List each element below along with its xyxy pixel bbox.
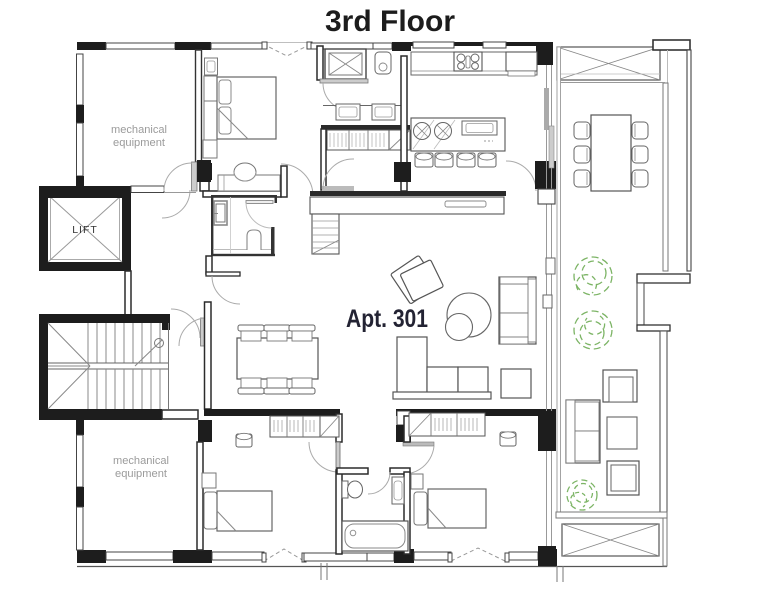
svg-text:mechanical: mechanical	[111, 124, 167, 136]
svg-text:3rd Floor: 3rd Floor	[325, 5, 455, 38]
svg-text:LIFT: LIFT	[72, 224, 98, 236]
svg-text:equipment: equipment	[113, 137, 165, 149]
svg-text:Apt. 301: Apt. 301	[346, 305, 428, 333]
svg-text:mechanical: mechanical	[113, 455, 169, 467]
svg-text:equipment: equipment	[115, 468, 167, 480]
